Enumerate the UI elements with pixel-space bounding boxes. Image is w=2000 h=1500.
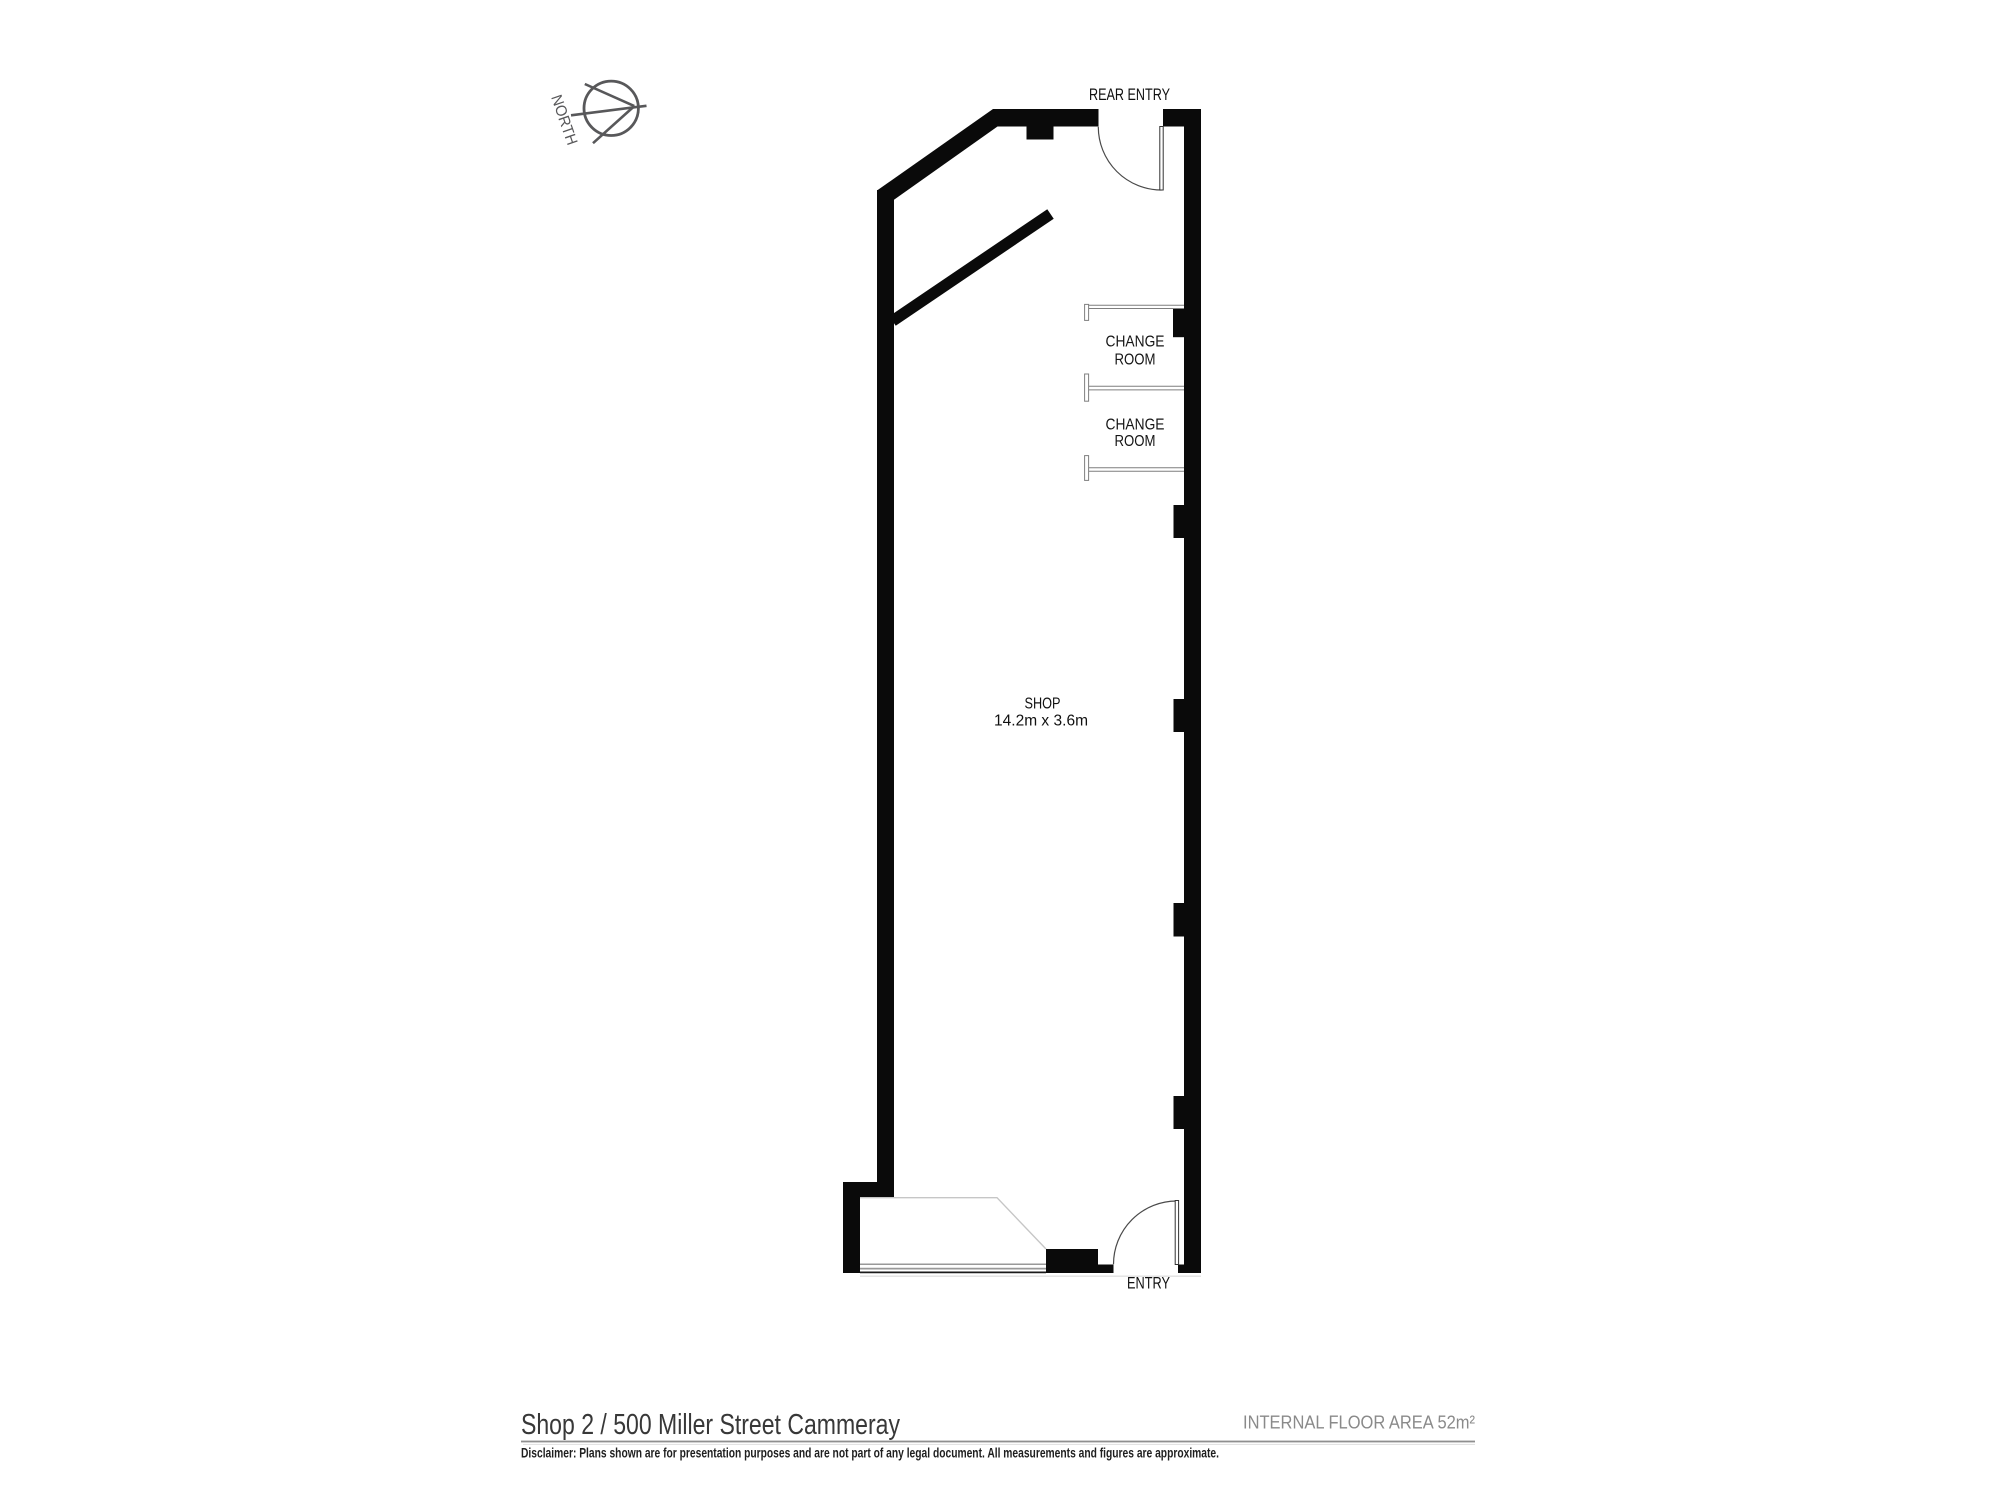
svg-text:Shop 2 / 500 Miller Street Cam: Shop 2 / 500 Miller Street Cammeray bbox=[521, 1409, 900, 1441]
svg-text:CHANGE: CHANGE bbox=[1106, 416, 1165, 433]
svg-text:SHOP: SHOP bbox=[1025, 696, 1061, 713]
svg-text:ROOM: ROOM bbox=[1115, 433, 1156, 450]
svg-text:ENTRY: ENTRY bbox=[1127, 1275, 1170, 1293]
svg-text:Disclaimer: Plans shown are fo: Disclaimer: Plans shown are for presenta… bbox=[521, 1444, 1219, 1460]
svg-text:ROOM: ROOM bbox=[1115, 351, 1156, 368]
svg-text:REAR ENTRY: REAR ENTRY bbox=[1089, 86, 1170, 104]
svg-text:INTERNAL FLOOR AREA 52m²: INTERNAL FLOOR AREA 52m² bbox=[1243, 1412, 1475, 1433]
svg-text:CHANGE: CHANGE bbox=[1106, 334, 1165, 351]
svg-text:14.2m x 3.6m: 14.2m x 3.6m bbox=[994, 712, 1088, 729]
